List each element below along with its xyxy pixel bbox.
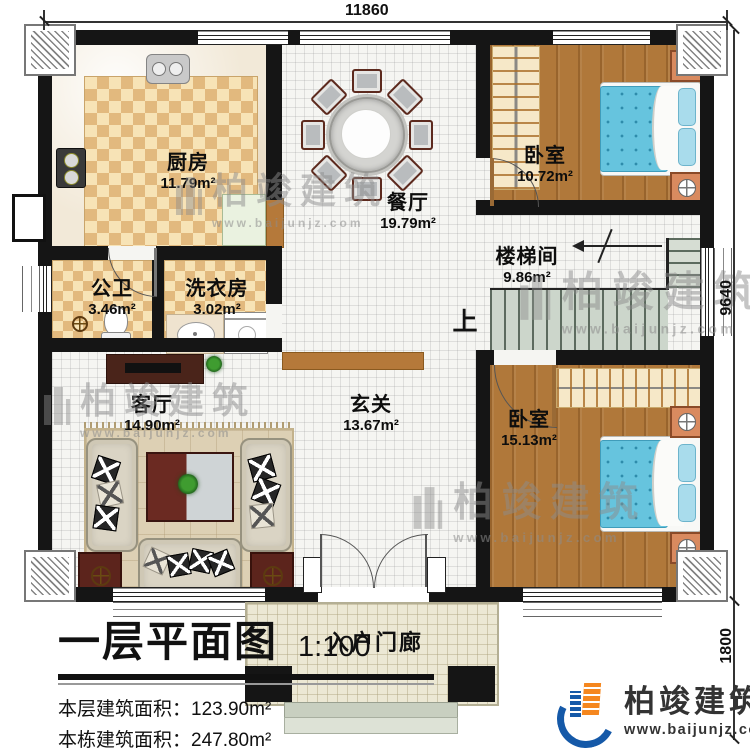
- corner-pilaster: [24, 24, 76, 76]
- entry-door-leaf-right: [425, 534, 427, 587]
- sofa-pillow: [249, 503, 275, 529]
- stat-building-area: 本栋建筑面积：247.80m²: [58, 725, 440, 750]
- window-sill: [523, 602, 662, 617]
- room-label-dining: 餐厅 19.79m²: [380, 192, 436, 232]
- range-hood-icon: [146, 54, 190, 84]
- plant-icon: [206, 356, 222, 372]
- title-rule-thin: [58, 683, 434, 685]
- entry-door-leaf-left: [320, 534, 322, 587]
- company-logo-icon: [556, 678, 614, 736]
- dimension-top-label: 11860: [345, 2, 389, 20]
- wall-kitchen-right: [266, 30, 282, 200]
- title-rule-thick: [58, 674, 434, 680]
- plan-title: 一层平面图: [58, 608, 278, 669]
- dining-table-top: [341, 109, 391, 159]
- dimension-tick: [729, 596, 740, 607]
- dining-chair: [301, 120, 325, 150]
- wall-laundry-right: [266, 246, 282, 304]
- door-leaf-bedroom-top: [490, 158, 494, 206]
- porch-column-right: [448, 666, 495, 702]
- wall-bedroom-bottom-left: [476, 350, 490, 602]
- wall-niche: [12, 194, 46, 242]
- room-label-foyer: 玄关 13.67m²: [343, 394, 399, 434]
- stove-icon: [56, 148, 86, 188]
- company-website: www.baijunjz.com: [624, 722, 750, 738]
- pillow: [678, 88, 696, 126]
- bedside-lamp-icon: [678, 179, 696, 197]
- door-gap-entry: [318, 587, 429, 602]
- corner-pilaster: [676, 24, 728, 76]
- bathroom-fixture-icon: [72, 316, 88, 332]
- stat-floor-area: 本层建筑面积：123.90m²: [58, 694, 440, 725]
- kitchen-sink-cabinet: [222, 194, 266, 246]
- sofa-pillow: [96, 480, 124, 508]
- dining-chair: [352, 69, 382, 93]
- wall-kitchen-bottom: [38, 246, 282, 260]
- room-label-stairwell: 楼梯间 9.86m²: [496, 246, 559, 286]
- wall-laundry-right-lower: [266, 338, 282, 352]
- stair-arrow-icon: [572, 240, 584, 252]
- wall-bath-laundry-bottom: [38, 338, 282, 352]
- dimension-right-porch-label: 1800: [718, 628, 736, 664]
- nightstand: [670, 406, 704, 438]
- room-label-bedroom-top: 卧室 10.72m²: [517, 145, 573, 185]
- company-name: 柏竣建筑: [624, 676, 750, 721]
- dining-chair: [352, 177, 382, 201]
- entry-door-frame-right: [427, 557, 446, 593]
- table-lamp-icon: [263, 566, 283, 586]
- stair-direction-line: [584, 245, 662, 247]
- shoe-cabinet: [282, 352, 424, 370]
- window-bedroom-top: [553, 30, 650, 45]
- wardrobe-bedroom-bottom: [556, 368, 702, 408]
- dimension-tick: [729, 24, 740, 35]
- dining-chair: [409, 120, 433, 150]
- window-living-bottom: [113, 587, 265, 602]
- window-kitchen-top: [198, 30, 288, 45]
- door-leaf-bathroom: [154, 248, 157, 296]
- kitchen-pass-counter: [266, 198, 284, 248]
- dimension-top-line: [43, 21, 727, 23]
- door-gap-bedroom-bottom: [494, 350, 556, 365]
- room-label-bedroom-bottom: 卧室 15.13m²: [501, 409, 557, 449]
- door-gap-laundry: [266, 304, 282, 338]
- plan-stats: 本层建筑面积：123.90m² 本栋建筑面积：247.80m² 占地面积：130…: [58, 694, 440, 750]
- bedside-lamp-icon: [678, 413, 696, 431]
- company-logo: 柏竣建筑 www.baijunjz.com: [556, 676, 750, 738]
- stair-upper-flight: [668, 238, 700, 288]
- coffee-table-plant-icon: [178, 474, 198, 494]
- wall-hall-right-upper: [476, 30, 490, 158]
- pillow: [678, 484, 696, 522]
- room-label-bathroom: 公卫 3.46m²: [88, 278, 136, 318]
- table-lamp-icon: [91, 566, 111, 586]
- room-label-kitchen: 厨房 11.79m²: [160, 152, 215, 192]
- window-stairwell-right: [700, 248, 714, 336]
- window-bathroom-left: [38, 266, 52, 312]
- room-label-living: 客厅 14.90m²: [124, 394, 180, 434]
- window-dining-top: [300, 30, 450, 45]
- sofa-pillow: [92, 504, 119, 531]
- window-sill: [22, 266, 40, 312]
- corner-pilaster: [676, 550, 728, 602]
- window-bedroom-bottom: [523, 587, 662, 602]
- dimension-right-main-label: 9640: [718, 280, 736, 316]
- pillow: [678, 128, 696, 166]
- tv-console: [106, 354, 204, 384]
- stair-up-label: 上: [452, 302, 477, 338]
- pillow: [678, 444, 696, 482]
- corner-pilaster: [24, 550, 76, 602]
- room-label-laundry: 洗衣房 3.02m²: [186, 278, 249, 318]
- plan-scale: 1:100: [298, 631, 371, 664]
- dimension-right-line-main: [733, 30, 735, 602]
- floor-plan-canvas: 厨房 11.79m² 餐厅 19.79m² 卧室 10.72m² 楼梯间 9.8…: [0, 0, 750, 750]
- title-block: 一层平面图 1:100 本层建筑面积：123.90m² 本栋建筑面积：247.8…: [58, 608, 440, 750]
- wall-left: [38, 30, 52, 602]
- stair-treads: [490, 288, 668, 352]
- stair-railing: [666, 238, 669, 290]
